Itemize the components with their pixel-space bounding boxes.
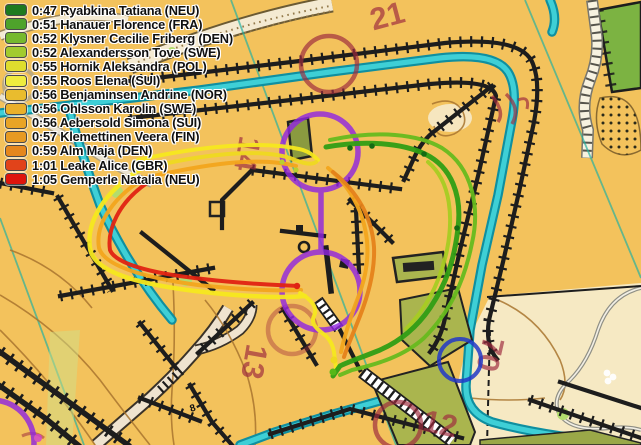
runner-time: 0:57 — [32, 129, 57, 144]
runner-time: 0:56 — [32, 101, 57, 116]
runner-time: 0:47 — [32, 3, 57, 18]
runner-name: Klemettinen Veera — [60, 129, 168, 144]
legend-item: 0:55 Roos Elena SUI — [5, 73, 233, 87]
runner-color-swatch — [5, 18, 27, 30]
runner-nation: SWE — [159, 101, 196, 116]
runner-name: Ohlsson Karolin — [60, 101, 156, 116]
runner-name: Leake Alice — [60, 158, 128, 173]
legend-item: 0:56 Aebersold Simona SUI — [5, 116, 233, 130]
runner-name: Hanauer Florence — [60, 17, 165, 32]
runner-name: Aebersold Simona — [60, 115, 169, 130]
runner-time: 0:56 — [32, 115, 57, 130]
runner-name: Alm Maja — [60, 143, 115, 158]
runner-color-swatch — [5, 46, 27, 58]
runner-nation: DEN — [198, 31, 233, 46]
runner-color-swatch — [5, 103, 27, 115]
runner-name: Gemperle Natalia — [60, 172, 161, 187]
runner-time: 0:52 — [32, 45, 57, 60]
runner-time: 0:51 — [32, 17, 57, 32]
runner-nation: NEU — [165, 3, 200, 18]
runner-nation: SUI — [131, 73, 160, 88]
svg-text:13: 13 — [234, 342, 274, 382]
runner-color-swatch — [5, 173, 27, 185]
runner-name: Roos Elena — [60, 73, 128, 88]
legend-item: 0:56 Ohlsson Karolin SWE — [5, 102, 233, 116]
runner-legend: 0:47 Ryabkina Tatiana NEU 0:51 Hanauer F… — [5, 3, 233, 186]
legend-item: 1:01 Leake Alice GBR — [5, 158, 233, 172]
legend-item: 0:56 Benjaminsen Andrine NOR — [5, 88, 233, 102]
legend-item: 0:59 Alm Maja DEN — [5, 144, 233, 158]
runner-name: Klysner Cecilie Friberg — [60, 31, 195, 46]
runner-color-swatch — [5, 32, 27, 44]
runner-name: Ryabkina Tatiana — [60, 3, 161, 18]
runner-time: 0:55 — [32, 59, 57, 74]
runner-name: Hornik Aleksandra — [60, 59, 169, 74]
runner-color-swatch — [5, 145, 27, 157]
runner-time: 1:01 — [32, 158, 57, 173]
runner-name: Alexandersson Tove — [60, 45, 181, 60]
runner-nation: POL — [173, 59, 207, 74]
runner-color-swatch — [5, 4, 27, 16]
legend-item: 0:47 Ryabkina Tatiana NEU — [5, 3, 233, 17]
runner-color-swatch — [5, 75, 27, 87]
runner-nation: FRA — [168, 17, 202, 32]
runner-color-swatch — [5, 117, 27, 129]
runner-nation: SWE — [184, 45, 221, 60]
legend-item: 0:51 Hanauer Florence FRA — [5, 17, 233, 31]
legend-item: 0:55 Hornik Aleksandra POL — [5, 59, 233, 73]
legend-item: 0:57 Klemettinen Veera FIN — [5, 130, 233, 144]
runner-nation: DEN — [118, 143, 153, 158]
runner-nation: SUI — [172, 115, 201, 130]
runner-nation: NOR — [191, 87, 227, 102]
runner-color-swatch — [5, 159, 27, 171]
runner-color-swatch — [5, 131, 27, 143]
legend-item: 1:05 Gemperle Natalia NEU — [5, 172, 233, 186]
runner-color-swatch — [5, 89, 27, 101]
runner-nation: NEU — [165, 172, 200, 187]
legend-item: 0:52 Alexandersson Tove SWE — [5, 45, 233, 59]
runner-nation: FIN — [171, 129, 199, 144]
runner-time: 0:55 — [32, 73, 57, 88]
runner-color-swatch — [5, 60, 27, 72]
svg-text:12: 12 — [420, 403, 461, 444]
gps-tracking-map-view: 8 21 14 13 12 70 — [0, 0, 641, 445]
runner-time: 0:59 — [32, 143, 57, 158]
runner-time: 0:52 — [32, 31, 57, 46]
runner-time: 1:05 — [32, 172, 57, 187]
runner-name: Benjaminsen Andrine — [60, 87, 187, 102]
runner-time: 0:56 — [32, 87, 57, 102]
runner-nation: GBR — [131, 158, 167, 173]
legend-item: 0:52 Klysner Cecilie Friberg DEN — [5, 31, 233, 45]
